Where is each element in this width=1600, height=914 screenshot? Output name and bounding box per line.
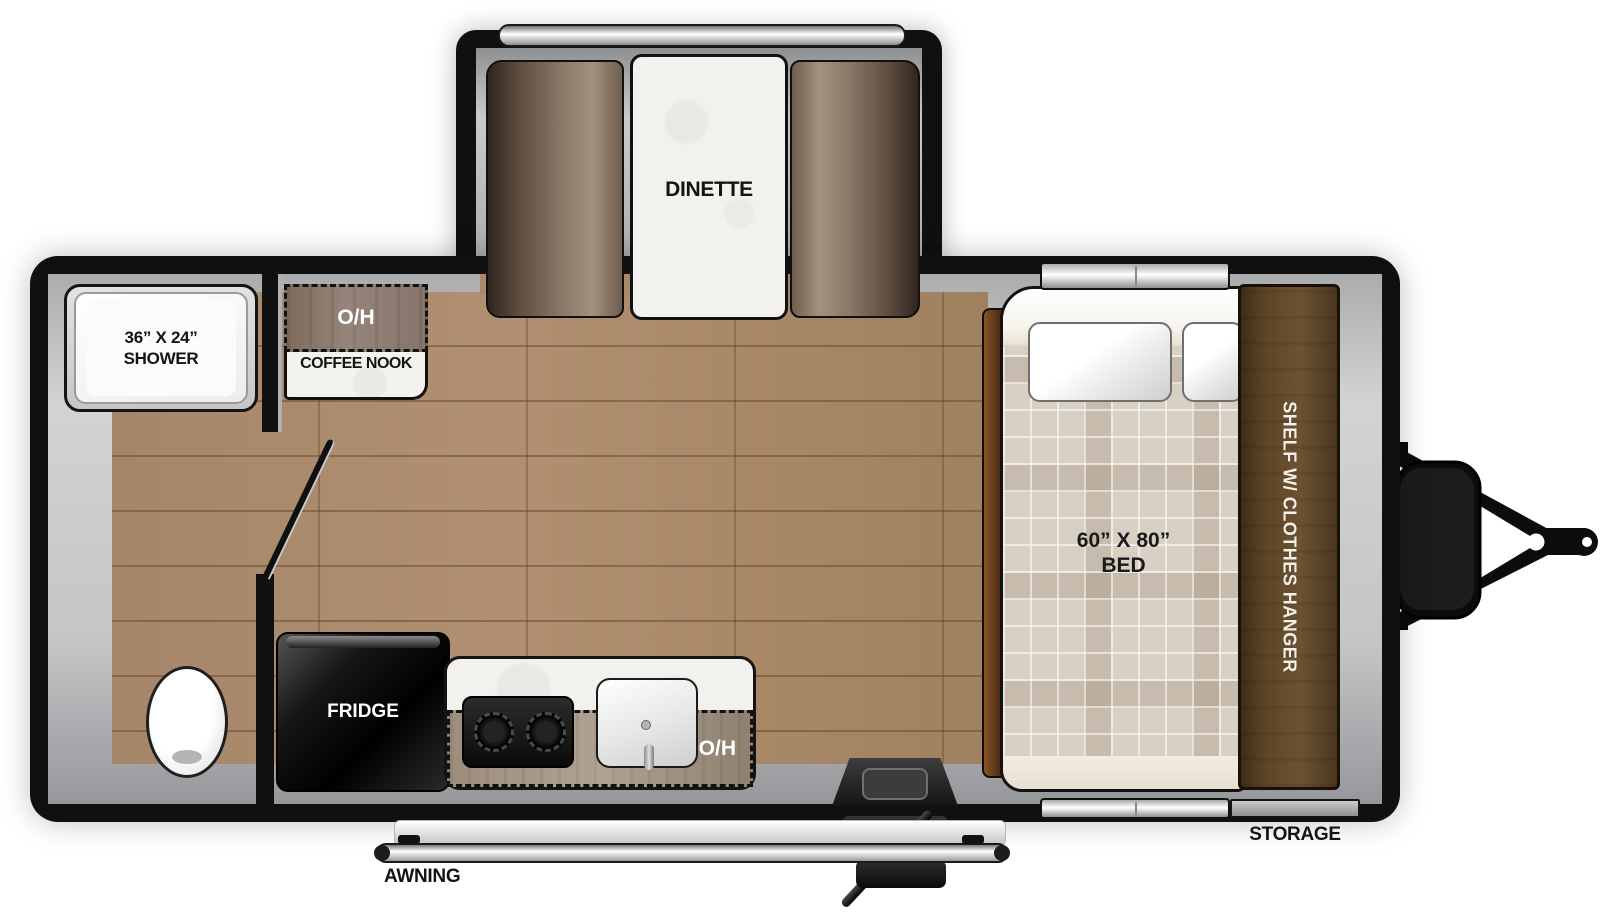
fridge-label: FRIDGE [327,701,399,723]
awning-bracket-right [962,835,984,844]
awning-end-cap-right [994,845,1010,861]
toilet-seat-hinge [172,750,202,764]
shelf-label: SHELF W/ CLOTHES HANGER [1279,292,1300,782]
storage-label: STORAGE [1228,824,1362,846]
hitch-ball-socket-opening [1582,537,1592,547]
window-seam [1135,802,1137,815]
shower-label: SHOWER [124,348,199,369]
shelf-with-clothes-hanger: SHELF W/ CLOTHES HANGER [1238,284,1340,790]
window-seam [1135,266,1137,286]
awning-end-cap-left [374,845,390,861]
fridge: FRIDGE [276,632,450,792]
entry-step-outer-lower [856,860,946,888]
bed-sheet-bottom [1003,756,1244,789]
coffee-nook-counter: COFFEE NOOK [284,352,428,400]
coffee-nook-label: COFFEE NOOK [300,355,412,373]
dinette-label: DINETTE [665,178,753,202]
bed-label-group: 60” X 80” BED [1000,528,1247,578]
fridge-hinge-bar [286,636,440,648]
bed-label: BED [1000,553,1247,578]
bed-size-label: 60” X 80” [1000,528,1247,553]
sink-drain [641,720,651,730]
pillow-left [1028,322,1172,402]
bedroom-window-bottom [1040,798,1230,819]
shower-inner: 36” X 24” SHOWER [86,300,236,396]
hitch-pin-hole [1528,534,1545,551]
bedroom-window-top [1040,262,1230,290]
kitchen-oh-label: O/H [699,737,736,761]
bathroom-wall-lower [256,574,274,806]
propane-tank-highlight [1400,468,1474,610]
bathroom-wall-upper [262,274,282,432]
trailer-floorplan: DINETTE 36” X 24” SHOWER O/H COFFEE NOOK… [0,0,1600,914]
awning-bar [376,843,1008,863]
dinette-bench-left [486,60,624,318]
stove-burner-right [526,712,566,752]
coffee-nook-oh-label: O/H [337,306,374,330]
stove-burner-left [474,712,514,752]
awning-bracket-left [398,835,420,844]
dinette-table: DINETTE [630,54,788,320]
entry-step-pad [862,768,928,800]
awning-label: AWNING [384,866,460,888]
storage-compartment-door [1230,799,1360,818]
coffee-nook-overhead-cabinet: O/H [284,284,428,352]
slideout-exterior-bar [498,24,906,47]
sink-faucet [644,744,654,770]
pillow-right [1182,322,1244,402]
trailer-hitch [1378,418,1600,650]
shower-size-label: 36” X 24” [125,327,198,348]
dinette-bench-right [790,60,920,318]
